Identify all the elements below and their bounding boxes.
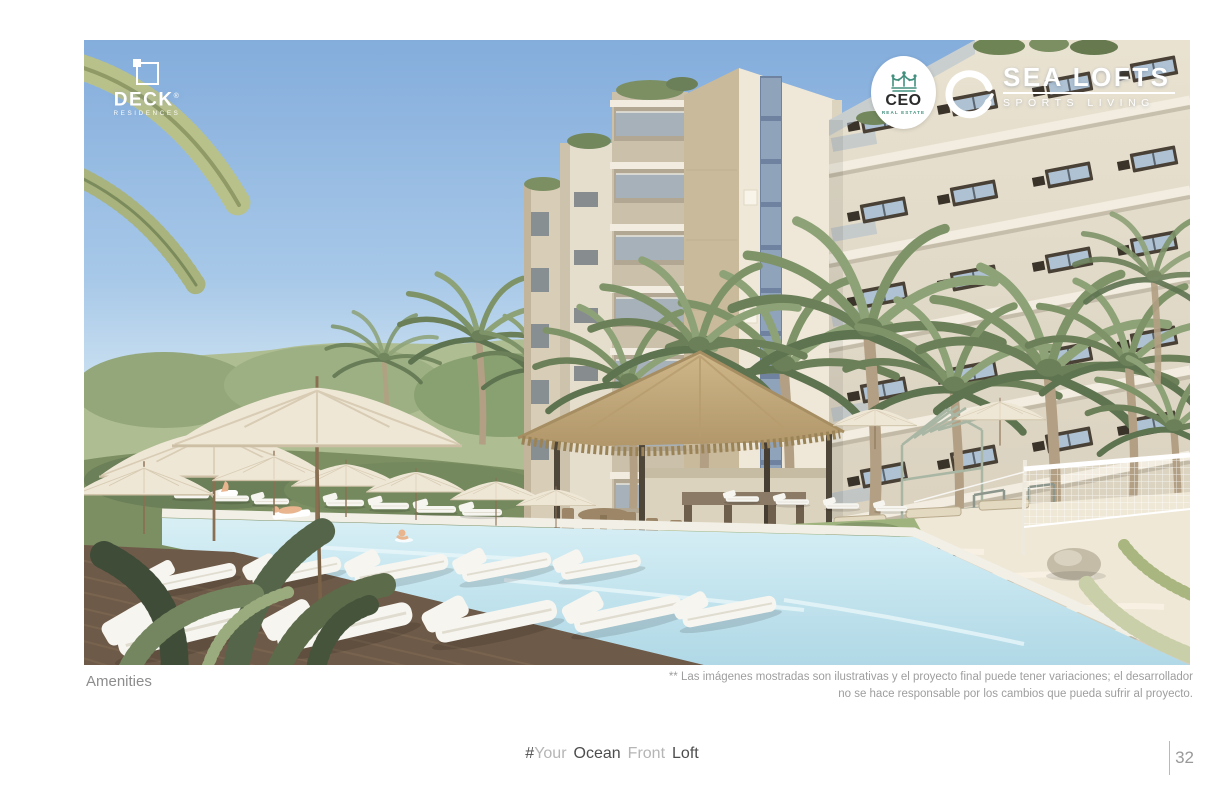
page-number-block: 32: [1169, 740, 1194, 776]
enso-circle-icon: [944, 68, 996, 120]
footer-seg-your: Your: [534, 745, 566, 762]
sea-lofts-name: SEA LOFTS: [1003, 64, 1175, 94]
page-number: 32: [1175, 748, 1194, 768]
footer-seg-front: Front: [628, 745, 665, 762]
ceo-real-estate-badge: CEO REAL ESTATE: [871, 56, 936, 129]
deck-logo-subtitle: RESIDENCES: [112, 110, 182, 117]
ceo-badge-subtitle: REAL ESTATE: [882, 110, 925, 115]
ceo-badge-name: CEO: [885, 93, 921, 108]
deck-logo-name: DECK®: [112, 88, 182, 109]
deck-residences-logo: DECK® RESIDENCES: [112, 62, 182, 117]
disclaimer-line-1: ** Las imágenes mostradas son ilustrativ…: [669, 671, 1193, 683]
footer-tagline: #YourOceanFrontLoft: [0, 745, 1224, 763]
resort-render-illustration: [84, 40, 1190, 665]
sea-lofts-subtitle: SPORTS LIVING: [1003, 97, 1175, 109]
registered-mark: ®: [174, 93, 181, 100]
footer-seg-hash: #: [525, 745, 534, 762]
amenities-render-image: DECK® RESIDENCES CEO REAL ESTATE: [84, 40, 1190, 665]
deck-logo-icon: [136, 62, 159, 85]
disclaimer-text: ** Las imágenes mostradas son ilustrativ…: [553, 669, 1193, 703]
disclaimer-line-2: no se hace responsable por los cambios q…: [838, 688, 1193, 700]
crown-icon: [889, 70, 919, 92]
footer-seg-ocean: Ocean: [574, 745, 621, 762]
page-number-divider: [1169, 741, 1170, 775]
footer-seg-loft: Loft: [672, 745, 699, 762]
caption-amenities: Amenities: [86, 673, 152, 690]
slide-page: DECK® RESIDENCES CEO REAL ESTATE: [0, 0, 1224, 792]
sea-lofts-logo: SEA LOFTS SPORTS LIVING: [944, 64, 1175, 120]
